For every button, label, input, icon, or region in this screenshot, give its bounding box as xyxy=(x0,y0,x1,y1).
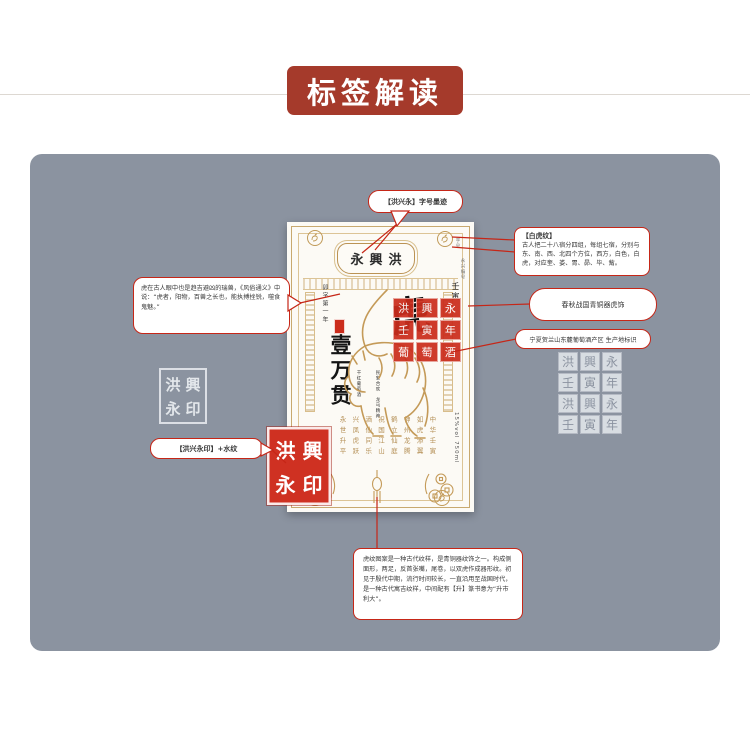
seal-glyph: 興 xyxy=(580,394,600,413)
seal-glyph: 印 xyxy=(299,466,326,500)
callout-text: 宁夏贺兰山东麓葡萄酒产区 生产地标识 xyxy=(529,335,636,344)
product-detail-image: 标签解读 永興洪 卯字第一年 壹万贯 民安合欢 龙马精神 干红葡萄酒 xyxy=(0,0,750,731)
seal-glyph: 永 xyxy=(272,466,299,500)
seal-glyph: 壬 xyxy=(393,320,414,340)
left-column-ornament xyxy=(305,292,315,412)
gray-grid-seal-top: 洪 興 永 壬 寅 年 xyxy=(558,352,622,392)
corner-note-a: 字号 xyxy=(454,238,460,254)
seal-glyph: 萄 xyxy=(416,342,437,362)
seal-glyph: 洪 xyxy=(558,352,578,371)
seal-glyph: 興 xyxy=(416,298,437,318)
seal-glyph: 洪 xyxy=(163,372,183,396)
date-column: 卯字第一年 xyxy=(320,284,329,336)
brand-cartouche: 永興洪 xyxy=(337,243,415,274)
seal-glyph: 永 xyxy=(602,394,622,413)
seal-glyph: 興 xyxy=(580,352,600,371)
seal-glyph: 葡 xyxy=(393,342,414,362)
gray-grid-seal-bottom: 洪 興 永 壬 寅 年 xyxy=(558,394,622,434)
section-title: 标签解读 xyxy=(307,70,443,112)
seal-glyph: 年 xyxy=(602,415,622,434)
seal-glyph: 興 xyxy=(299,432,326,466)
hongxingyong-red-seal: 洪 興 永 印 xyxy=(267,427,331,505)
seal-glyph: 洪 xyxy=(272,432,299,466)
callout-text: 春秋战国青铜器虎饰 xyxy=(562,300,625,310)
seal-glyph: 年 xyxy=(602,373,622,392)
seal-glyph: 寅 xyxy=(416,320,437,340)
callout-tiger-pattern-history: 虎纹图案是一种古代纹样，是青铜器纹饰之一。构成侧面形，两足，反首张嘴，尾卷，以双… xyxy=(353,548,523,620)
seal-glyph: 洪 xyxy=(393,298,414,318)
seal-glyph: 寅 xyxy=(580,415,600,434)
volume-text: 15%vol 750ml xyxy=(453,412,459,472)
section-title-banner: 标签解读 xyxy=(287,66,463,115)
seal-glyph: 永 xyxy=(440,298,461,318)
callout-text: 【洪兴永印】+水纹 xyxy=(176,444,238,454)
rooster-medallion-icon xyxy=(307,230,323,246)
callout-production-region: 宁夏贺兰山东麓葡萄酒产区 生产地标识 xyxy=(515,329,651,349)
seal-glyph: 興 xyxy=(183,372,203,396)
seal-glyph: 壬 xyxy=(558,415,578,434)
callout-white-tiger-pattern: 【白虎纹】 古人把二十八宿分四组，每组七宿，分别与东、南、西、北四个方位，西方，… xyxy=(514,227,650,276)
callout-title: 【白虎纹】 xyxy=(522,232,642,242)
seal-glyph: 印 xyxy=(183,396,203,420)
seal-glyph: 酒 xyxy=(440,342,461,362)
seal-glyph: 寅 xyxy=(580,373,600,392)
rooster-medallion-icon xyxy=(437,231,453,247)
callout-text: 【洪兴永】字号墨迹 xyxy=(384,197,447,207)
seal-glyph: 永 xyxy=(163,396,183,420)
gray-seal-stamp: 洪 興 永 印 xyxy=(159,368,207,424)
callout-text: 虎在古人眼中也是趋吉避凶的瑞兽，《风俗通义》中说：“虎者，阳物，百兽之长也，能执… xyxy=(141,285,280,311)
seal-glyph: 年 xyxy=(440,320,461,340)
seal-glyph: 永 xyxy=(602,352,622,371)
seal-glyph: 洪 xyxy=(558,394,578,413)
red-grid-seal: 洪 興 永 壬 寅 年 葡 萄 酒 xyxy=(393,298,461,362)
callout-tiger-lore: 虎在古人眼中也是趋吉避凶的瑞兽，《风俗通义》中说：“虎者，阳物，百兽之长也，能执… xyxy=(133,277,290,334)
callout-text: 虎纹图案是一种古代纹样，是青铜器纹饰之一。构成侧面形，两足，反首张嘴，尾卷，以双… xyxy=(363,556,512,603)
callout-text: 古人把二十八宿分四组，每组七宿，分别与东、南、西、北四个方位，西方，白色，白虎，… xyxy=(522,242,640,267)
callout-bronze-tiger: 春秋战国青铜器虎饰 xyxy=(529,288,657,321)
brand-name: 永興洪 xyxy=(344,249,407,268)
callout-seal-watermark: 【洪兴永印】+水纹 xyxy=(150,438,263,459)
corner-note-b: 永兴编号 xyxy=(459,258,465,288)
callout-brand-inscription: 【洪兴永】字号墨迹 xyxy=(368,190,463,213)
seal-glyph: 壬 xyxy=(558,373,578,392)
